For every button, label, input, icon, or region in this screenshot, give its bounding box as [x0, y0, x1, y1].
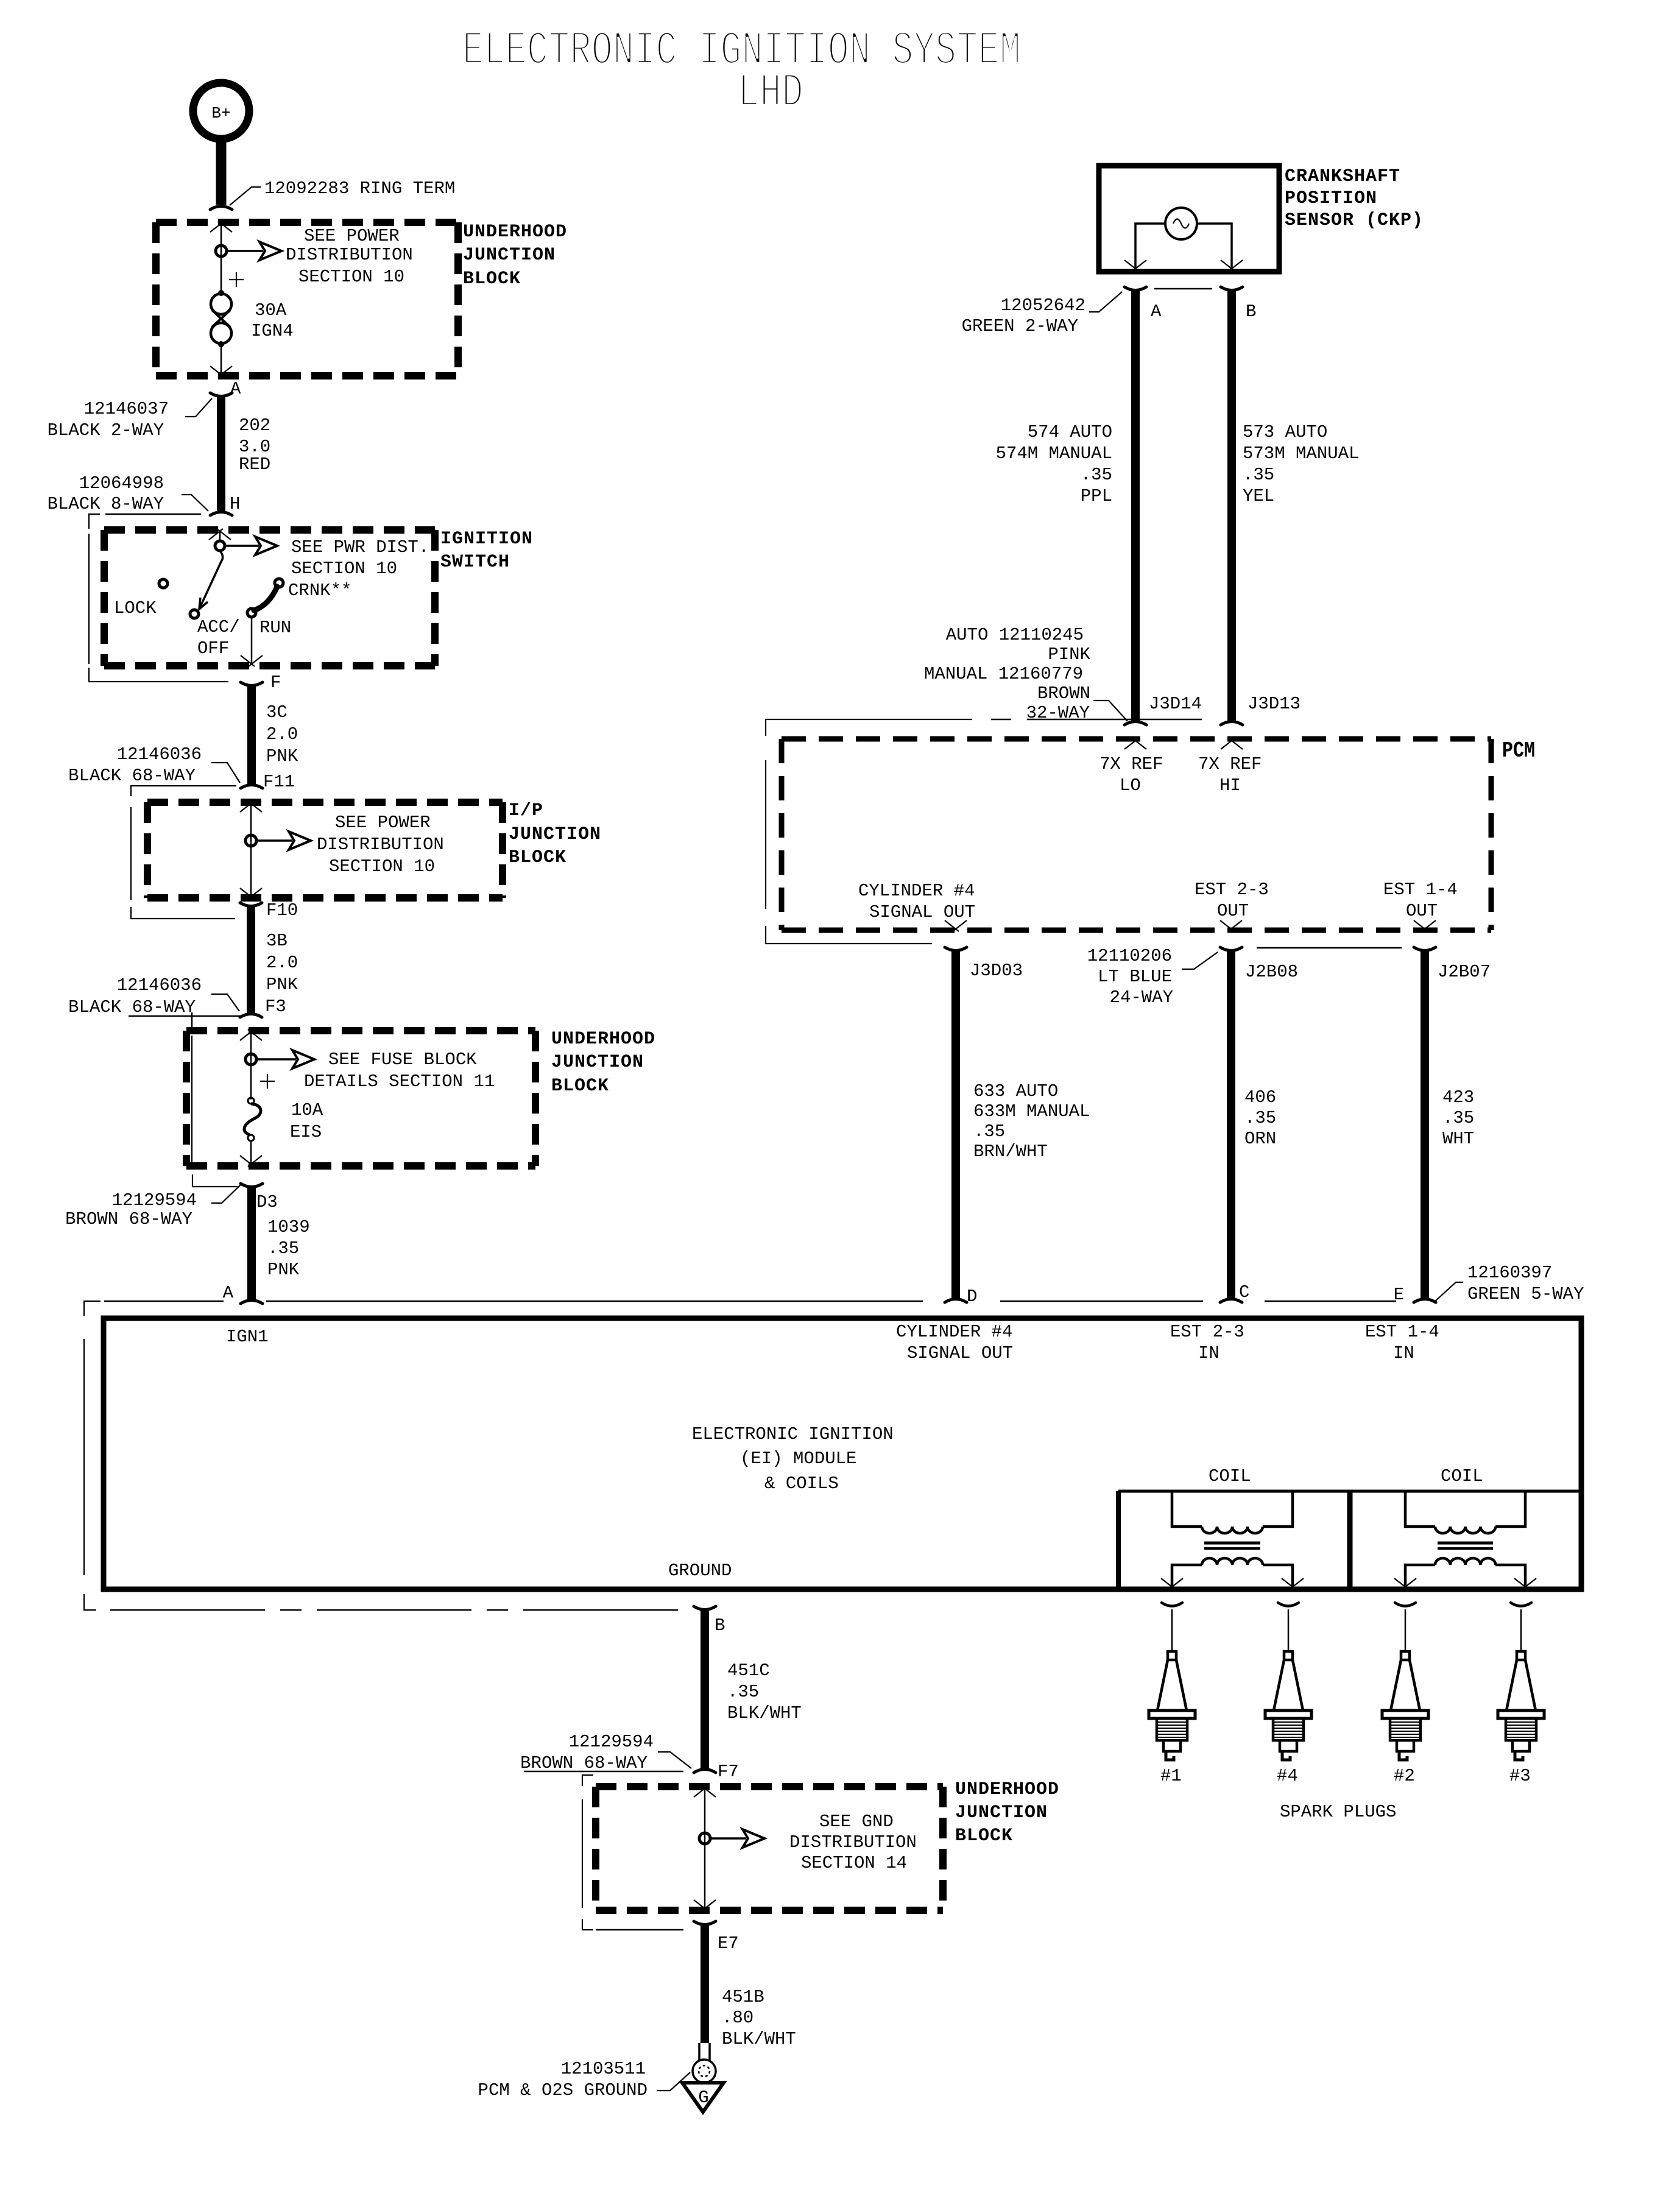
svg-text:BLK/WHT: BLK/WHT [722, 2029, 796, 2049]
svg-text:.80: .80 [722, 2008, 754, 2028]
svg-text:SIGNAL OUT: SIGNAL OUT [869, 902, 975, 922]
svg-text:12129594: 12129594 [112, 1190, 197, 1210]
svg-text:GREEN 2-WAY: GREEN 2-WAY [962, 316, 1078, 336]
svg-text:GREEN 5-WAY: GREEN 5-WAY [1467, 1284, 1584, 1304]
svg-text:2.0: 2.0 [266, 953, 298, 973]
svg-text:A: A [1151, 302, 1162, 322]
svg-text:BLOCK: BLOCK [551, 1076, 609, 1096]
svg-text:7X REF: 7X REF [1099, 754, 1163, 774]
svg-text:BROWN 68-WAY: BROWN 68-WAY [520, 1753, 648, 1773]
svg-text:2.0: 2.0 [266, 724, 298, 744]
svg-text:LT BLUE: LT BLUE [1098, 967, 1172, 987]
svg-text:EST 2-3: EST 2-3 [1195, 880, 1269, 900]
svg-text:AUTO 12110245: AUTO 12110245 [946, 625, 1084, 645]
svg-text:BLOCK: BLOCK [955, 1826, 1013, 1846]
svg-text:PCM: PCM [1502, 738, 1535, 763]
svg-text:.35: .35 [267, 1238, 299, 1259]
svg-text:BLACK 2-WAY: BLACK 2-WAY [48, 420, 164, 440]
svg-text:.35: .35 [727, 1682, 759, 1702]
svg-text:E: E [1394, 1285, 1404, 1305]
svg-text:PNK: PNK [266, 746, 298, 766]
svg-text:.35: .35 [1442, 1108, 1474, 1128]
svg-text:PINK: PINK [1048, 644, 1090, 665]
svg-text:574 AUTO: 574 AUTO [1028, 422, 1112, 442]
svg-text:JUNCTION: JUNCTION [509, 824, 601, 845]
svg-text:BLOCK: BLOCK [509, 847, 566, 868]
svg-text:SWITCH: SWITCH [440, 552, 510, 573]
svg-text:#1: #1 [1160, 1766, 1182, 1786]
svg-text:IN: IN [1198, 1343, 1219, 1363]
svg-text:RED: RED [239, 454, 270, 475]
svg-text:DETAILS SECTION 11: DETAILS SECTION 11 [304, 1071, 495, 1092]
svg-text:EST 1-4: EST 1-4 [1365, 1322, 1439, 1342]
svg-text:& COILS: & COILS [764, 1474, 839, 1494]
svg-text:3C: 3C [266, 702, 288, 722]
svg-text:D3: D3 [256, 1192, 278, 1212]
svg-text:H: H [230, 494, 240, 514]
svg-text:12052642: 12052642 [1001, 295, 1085, 316]
svg-text:LHD: LHD [738, 66, 803, 120]
svg-text:451C: 451C [727, 1661, 770, 1681]
svg-text:E7: E7 [718, 1933, 739, 1954]
svg-text:30A: 30A [255, 300, 287, 320]
svg-text:573 AUTO: 573 AUTO [1243, 422, 1327, 442]
svg-text:OFF: OFF [197, 638, 229, 658]
svg-text:B: B [1246, 302, 1256, 322]
svg-text:SECTION 10: SECTION 10 [329, 856, 435, 877]
svg-text:633M MANUAL: 633M MANUAL [973, 1101, 1090, 1121]
svg-text:.35: .35 [1244, 1108, 1276, 1128]
svg-text:BROWN: BROWN [1037, 683, 1090, 704]
svg-text:12103511: 12103511 [561, 2059, 646, 2079]
svg-text:12064998: 12064998 [79, 473, 164, 493]
svg-text:BLACK 8-WAY: BLACK 8-WAY [48, 494, 164, 514]
svg-text:BLOCK: BLOCK [463, 269, 521, 289]
svg-text:PNK: PNK [267, 1260, 300, 1280]
svg-text:SPARK PLUGS: SPARK PLUGS [1280, 1802, 1396, 1822]
svg-text:ORN: ORN [1244, 1129, 1276, 1149]
svg-text:CYLINDER #4: CYLINDER #4 [896, 1322, 1012, 1342]
svg-text:SECTION 10: SECTION 10 [298, 267, 404, 287]
svg-text:406: 406 [1244, 1087, 1276, 1107]
svg-text:B: B [715, 1615, 725, 1636]
svg-text:BLACK 68-WAY: BLACK 68-WAY [68, 766, 196, 786]
svg-text:BRN/WHT: BRN/WHT [973, 1142, 1048, 1162]
svg-text:JUNCTION: JUNCTION [463, 245, 556, 266]
svg-text:J2B08: J2B08 [1245, 962, 1298, 982]
svg-text:.35: .35 [973, 1121, 1005, 1142]
svg-text:451B: 451B [722, 1987, 764, 2007]
svg-text:HI: HI [1219, 775, 1241, 796]
svg-text:12146036: 12146036 [117, 744, 202, 764]
svg-text:CRANKSHAFT: CRANKSHAFT [1285, 166, 1400, 187]
svg-text:BLK/WHT: BLK/WHT [727, 1703, 802, 1723]
svg-text:12092283 RING TERM: 12092283 RING TERM [264, 178, 455, 199]
svg-text:PCM & O2S GROUND: PCM & O2S GROUND [478, 2080, 648, 2100]
svg-text:RUN: RUN [259, 618, 291, 638]
svg-text:SECTION 14: SECTION 14 [801, 1853, 907, 1873]
svg-text:PPL: PPL [1081, 486, 1112, 506]
svg-text:7X REF: 7X REF [1198, 754, 1262, 774]
svg-text:F7: F7 [718, 1762, 739, 1782]
svg-text:MANUAL 12160779: MANUAL 12160779 [924, 664, 1083, 684]
svg-text:D: D [967, 1287, 977, 1307]
svg-text:.35: .35 [1243, 465, 1274, 485]
svg-text:IN: IN [1393, 1343, 1414, 1363]
svg-text:SEE POWER: SEE POWER [304, 226, 400, 246]
svg-text:EST 2-3: EST 2-3 [1170, 1322, 1244, 1342]
svg-text:10A: 10A [291, 1100, 323, 1120]
svg-text:J3D03: J3D03 [970, 961, 1023, 981]
svg-text:SEE PWR DIST.: SEE PWR DIST. [291, 537, 429, 557]
svg-text:202: 202 [239, 415, 270, 436]
svg-text:WHT: WHT [1442, 1129, 1474, 1149]
svg-text:SEE GND: SEE GND [819, 1812, 894, 1832]
svg-text:UNDERHOOD: UNDERHOOD [955, 1779, 1059, 1800]
svg-text:YEL: YEL [1243, 486, 1274, 506]
svg-text:12129594: 12129594 [569, 1732, 654, 1752]
svg-text:12160397: 12160397 [1467, 1263, 1552, 1283]
svg-text:ACC/: ACC/ [197, 617, 240, 637]
svg-text:COIL: COIL [1441, 1466, 1483, 1486]
svg-text:12110206: 12110206 [1087, 946, 1172, 966]
svg-text:EST 1-4: EST 1-4 [1383, 880, 1458, 900]
svg-text:CYLINDER #4: CYLINDER #4 [858, 881, 975, 901]
svg-text:IGN1: IGN1 [226, 1327, 269, 1347]
svg-text:.35: .35 [1081, 465, 1112, 485]
svg-text:UNDERHOOD: UNDERHOOD [551, 1029, 655, 1050]
svg-text:UNDERHOOD: UNDERHOOD [463, 222, 567, 242]
svg-text:(EI) MODULE: (EI) MODULE [740, 1449, 856, 1469]
svg-text:1039: 1039 [267, 1217, 310, 1237]
svg-text:F: F [270, 673, 281, 693]
svg-text:DISTRIBUTION: DISTRIBUTION [317, 835, 444, 855]
svg-text:J2B07: J2B07 [1438, 962, 1491, 982]
svg-text:F11: F11 [263, 772, 295, 792]
svg-text:J3D14: J3D14 [1149, 694, 1202, 714]
svg-text:#4: #4 [1277, 1766, 1298, 1786]
svg-text:A: A [230, 379, 241, 399]
svg-text:J3D13: J3D13 [1248, 694, 1301, 714]
svg-text:OUT: OUT [1406, 901, 1438, 921]
svg-text:ELECTRONIC IGNITION: ELECTRONIC IGNITION [692, 1424, 894, 1444]
svg-text:573M MANUAL: 573M MANUAL [1243, 443, 1359, 464]
svg-text:CRNK**: CRNK** [288, 581, 351, 601]
svg-text:SENSOR (CKP): SENSOR (CKP) [1285, 210, 1424, 231]
svg-text:PNK: PNK [266, 975, 298, 995]
svg-text:633 AUTO: 633 AUTO [973, 1081, 1058, 1101]
svg-text:F10: F10 [266, 900, 298, 920]
svg-text:DISTRIBUTION: DISTRIBUTION [789, 1832, 917, 1852]
svg-text:A: A [223, 1283, 234, 1303]
svg-text:IGNITION: IGNITION [440, 529, 533, 549]
svg-text:G: G [698, 2088, 708, 2108]
svg-text:3B: 3B [266, 931, 288, 951]
svg-text:LOCK: LOCK [114, 598, 157, 618]
svg-text:POSITION: POSITION [1285, 188, 1377, 209]
svg-text:JUNCTION: JUNCTION [551, 1052, 644, 1073]
svg-text:SIGNAL OUT: SIGNAL OUT [907, 1343, 1013, 1363]
svg-text:DISTRIBUTION: DISTRIBUTION [286, 245, 413, 265]
svg-text:LO: LO [1120, 775, 1141, 796]
svg-text:BROWN 68-WAY: BROWN 68-WAY [65, 1209, 192, 1229]
svg-text:574M MANUAL: 574M MANUAL [996, 443, 1112, 464]
svg-text:COIL: COIL [1209, 1466, 1251, 1486]
svg-text:12146037: 12146037 [84, 399, 169, 419]
svg-text:BLACK 68-WAY: BLACK 68-WAY [68, 997, 196, 1017]
svg-text:SECTION 10: SECTION 10 [291, 559, 397, 579]
svg-text:I/P: I/P [509, 800, 543, 821]
svg-text:F3: F3 [265, 997, 286, 1017]
svg-text:OUT: OUT [1217, 901, 1249, 921]
svg-text:JUNCTION: JUNCTION [955, 1802, 1048, 1823]
svg-text:SEE FUSE BLOCK: SEE FUSE BLOCK [328, 1050, 477, 1070]
svg-text:IGN4: IGN4 [251, 321, 294, 341]
svg-text:B+: B+ [211, 104, 230, 122]
svg-text:423: 423 [1442, 1087, 1474, 1107]
svg-text:GROUND: GROUND [668, 1561, 732, 1581]
svg-text:#3: #3 [1509, 1766, 1531, 1786]
svg-text:SEE POWER: SEE POWER [335, 813, 431, 833]
svg-text:12146036: 12146036 [117, 975, 202, 995]
svg-text:EIS: EIS [290, 1122, 322, 1142]
svg-text:24-WAY: 24-WAY [1110, 987, 1173, 1008]
svg-text:#2: #2 [1394, 1766, 1415, 1786]
svg-text:C: C [1239, 1282, 1249, 1302]
